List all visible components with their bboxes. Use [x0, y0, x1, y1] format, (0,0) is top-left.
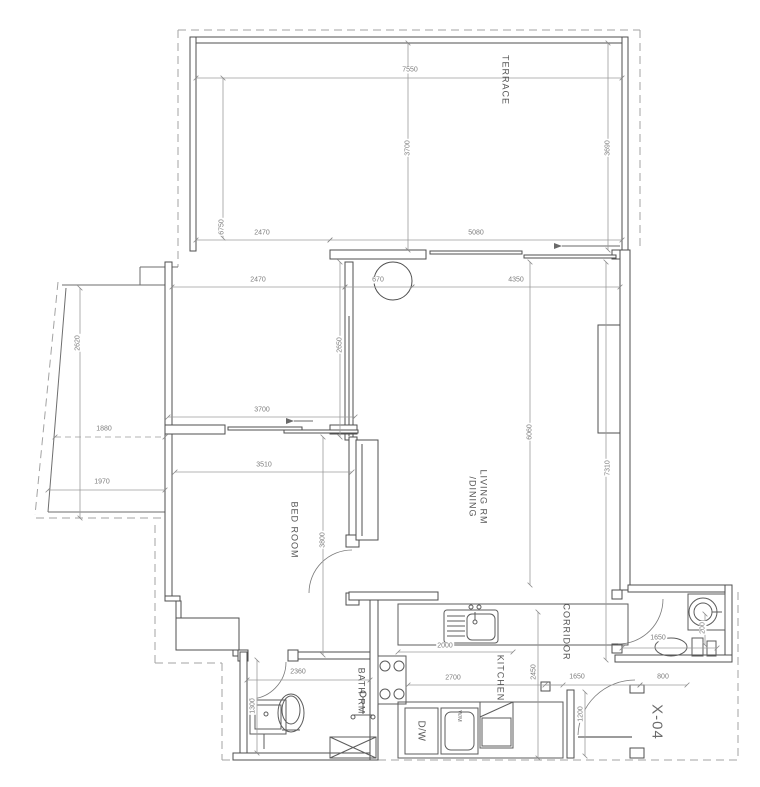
dim-entry-wall: 800	[656, 674, 670, 681]
wc-fixtures	[655, 594, 725, 656]
sliding-door-arrows	[294, 246, 620, 421]
dim-bedroom-wall-top: 3700	[253, 407, 271, 414]
room-label-terrace: TERRACE	[499, 55, 510, 105]
site-boundary-dashed	[35, 30, 738, 760]
dim-terrace-depth-left: 6750	[219, 218, 226, 236]
room-label-bedroom: BED ROOM	[288, 501, 299, 558]
unit-number-label: X-04	[649, 704, 666, 740]
washer-label: W/M	[456, 710, 462, 721]
room-label-corridor: CORRIDOR	[560, 604, 571, 661]
dim-terrace-depth-right: 3690	[605, 139, 612, 157]
dim-court-width: 2470	[249, 277, 267, 284]
dim-entry-door: 1200	[578, 705, 585, 723]
dim-terrace-depth-mid: 3700	[405, 139, 412, 157]
room-label-living-line1: LIVING RM	[478, 469, 488, 524]
dim-bedroom-width: 3510	[255, 462, 273, 469]
dim-bathroom-width: 2360	[289, 669, 307, 676]
room-label-kitchen: KITCHEN	[494, 655, 505, 702]
room-label-living-line2: /DINING	[467, 476, 477, 517]
planter-edges	[48, 267, 178, 512]
dim-glass-wall: 2650	[337, 336, 344, 354]
dim-east-wall: 7310	[605, 459, 612, 477]
dim-living-depth: 6060	[527, 423, 534, 441]
dim-terrace-width: 7550	[401, 67, 419, 74]
dim-planter-width-bottom: 1970	[93, 479, 111, 486]
dim-court-depth: 2620	[75, 334, 82, 352]
dim-counter-length: 2000	[436, 643, 454, 650]
dim-basin-offset: 200	[700, 621, 707, 635]
dim-kitchen-width: 2700	[444, 675, 462, 682]
dim-bedroom-depth: 3800	[320, 531, 327, 549]
floor-plan-linework	[0, 0, 760, 787]
dim-terrace-seg-left: 2470	[253, 230, 271, 237]
dim-bathroom-depth: 1300	[250, 697, 257, 715]
dishwasher-label: D/W	[416, 721, 427, 742]
walls	[165, 37, 732, 760]
dim-terrace-seg-right: 5080	[467, 230, 485, 237]
dim-column-offset: 670	[371, 277, 385, 284]
dim-bath2-width: 1650	[649, 635, 667, 642]
dim-planter-width-mid: 1880	[95, 426, 113, 433]
dim-living-width-top: 4350	[507, 277, 525, 284]
room-label-bathroom: BATH RM	[355, 668, 366, 715]
dim-corridor-width: 1650	[568, 674, 586, 681]
floor-plan-canvas: 7550 3700 3690 6750 2470 5080 2470 670 4…	[0, 0, 760, 787]
room-label-living: LIVING RM /DINING	[466, 469, 489, 524]
dim-corridor-depth: 2450	[531, 663, 538, 681]
